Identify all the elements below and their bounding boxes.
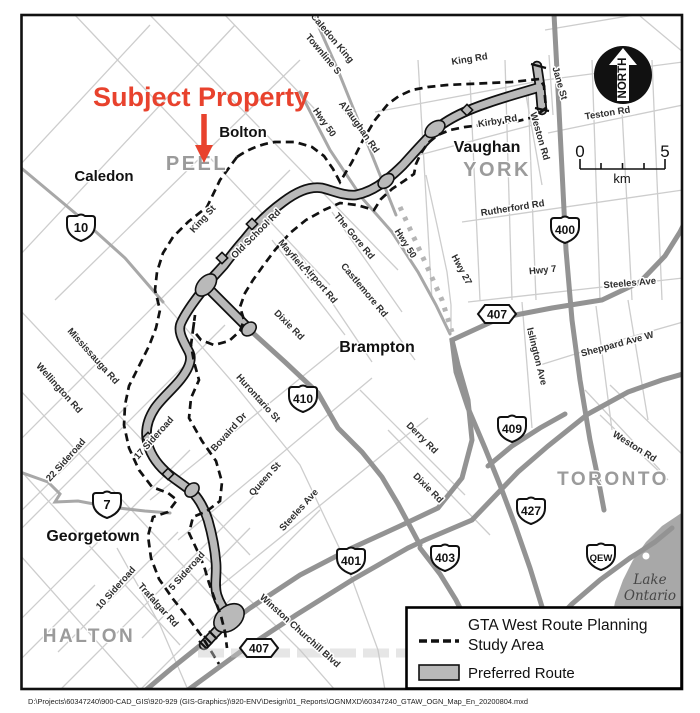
scale-start: 0 xyxy=(575,142,584,161)
subject-property-label: Subject Property xyxy=(93,82,309,112)
legend-study-area-line1: GTA West Route Planning xyxy=(468,617,648,634)
legend: GTA West Route Planning Study Area Prefe… xyxy=(407,608,682,689)
scale-unit: km xyxy=(613,171,630,186)
city-label-vaughan: Vaughan xyxy=(454,139,521,156)
shield-number: 403 xyxy=(435,551,455,565)
city-label-bolton: Bolton xyxy=(219,124,266,141)
scale-end: 5 xyxy=(660,142,669,161)
shield-number: 427 xyxy=(521,504,541,518)
legend-study-area-line2: Study Area xyxy=(468,637,544,654)
north-arrow: NORTH xyxy=(594,46,652,104)
legend-preferred-route-swatch-icon xyxy=(419,665,459,680)
file-path-text: D:\Projects\60347240\900-CAD_GIS\920-929… xyxy=(28,697,528,706)
shield-number: 400 xyxy=(555,223,575,237)
region-label-peel: PEEL xyxy=(166,153,228,175)
legend-preferred-route-label: Preferred Route xyxy=(468,665,575,682)
region-label-halton: HALTON xyxy=(43,626,135,647)
region-label-toronto: TORONTO xyxy=(557,469,669,490)
map-page: Caledon KingTownline SHwy 50AlbionVaugha… xyxy=(0,0,700,713)
city-label-georgetown: Georgetown xyxy=(46,528,139,545)
shield-number: 410 xyxy=(293,392,313,406)
shield-number: 7 xyxy=(103,497,110,512)
svg-text:Lake: Lake xyxy=(632,572,666,588)
north-label: NORTH xyxy=(617,58,629,99)
shield-number: 409 xyxy=(502,422,522,436)
city-label-caledon: Caledon xyxy=(74,168,133,185)
shield-number: 407 xyxy=(487,308,507,322)
shield-number: 401 xyxy=(341,554,361,568)
svg-text:Ontario: Ontario xyxy=(624,588,676,604)
highway-shield-407: 407 xyxy=(478,305,516,323)
city-label-brampton: Brampton xyxy=(339,339,415,356)
region-label-york: YORK xyxy=(463,159,531,181)
highway-shield-407: 407 xyxy=(240,639,278,657)
shield-number: 407 xyxy=(249,642,269,656)
shield-number: QEW xyxy=(590,553,613,564)
map-svg: Caledon KingTownline SHwy 50AlbionVaugha… xyxy=(0,0,700,713)
shield-number: 10 xyxy=(74,220,88,235)
